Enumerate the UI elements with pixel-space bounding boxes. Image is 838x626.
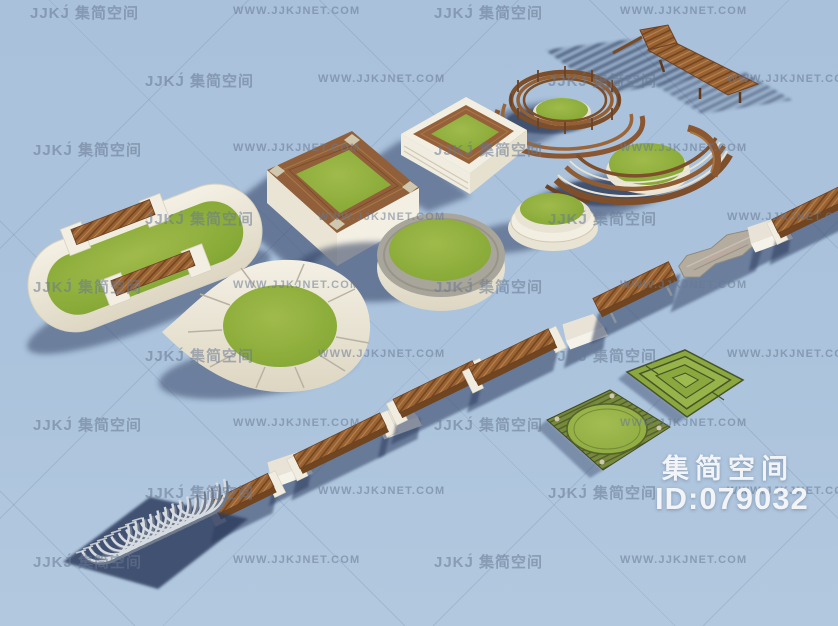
scene-3d-render: [0, 0, 838, 626]
site-name-text: 集简空间: [662, 455, 809, 483]
curved-metal-bench: [63, 479, 248, 589]
site-id-overlay: 集简空间 ID:079032: [655, 455, 809, 516]
model-id-text: ID:079032: [655, 483, 809, 516]
wood-lounge-chair: [545, 25, 792, 114]
render-canvas: JJKJ́ 集简空间WWW.JJKJNET.COMJJKJ́ 集简空间WWW.J…: [0, 0, 838, 626]
